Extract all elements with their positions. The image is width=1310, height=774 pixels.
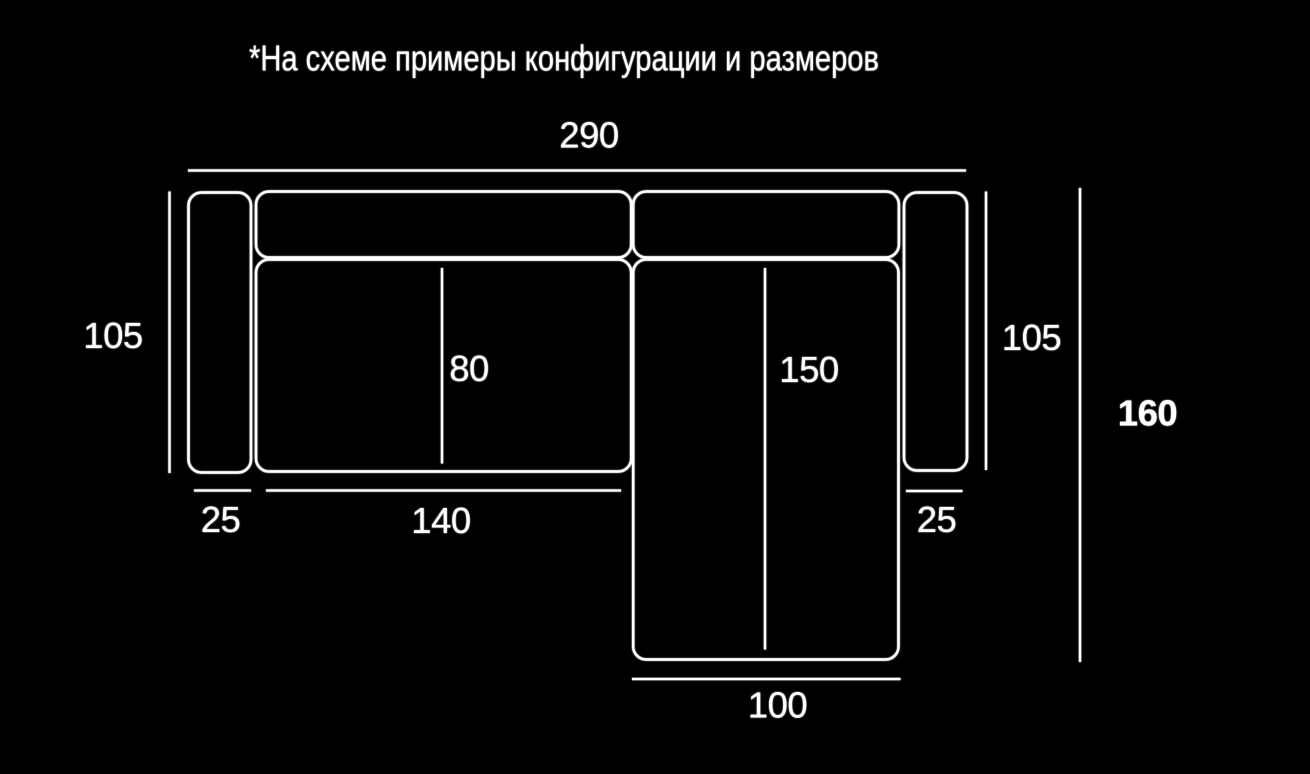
svg-text:25: 25 [201, 499, 241, 540]
svg-text:140: 140 [411, 500, 470, 541]
svg-text:25: 25 [917, 499, 957, 540]
svg-text:105: 105 [83, 315, 142, 356]
svg-text:*На схеме примеры конфигурации: *На схеме примеры конфигурации и размеро… [249, 38, 879, 79]
svg-text:80: 80 [449, 348, 489, 389]
svg-text:290: 290 [559, 115, 618, 156]
svg-text:105: 105 [1002, 317, 1061, 358]
svg-text:100: 100 [748, 685, 807, 726]
svg-text:160: 160 [1118, 393, 1177, 434]
svg-text:150: 150 [779, 349, 838, 390]
